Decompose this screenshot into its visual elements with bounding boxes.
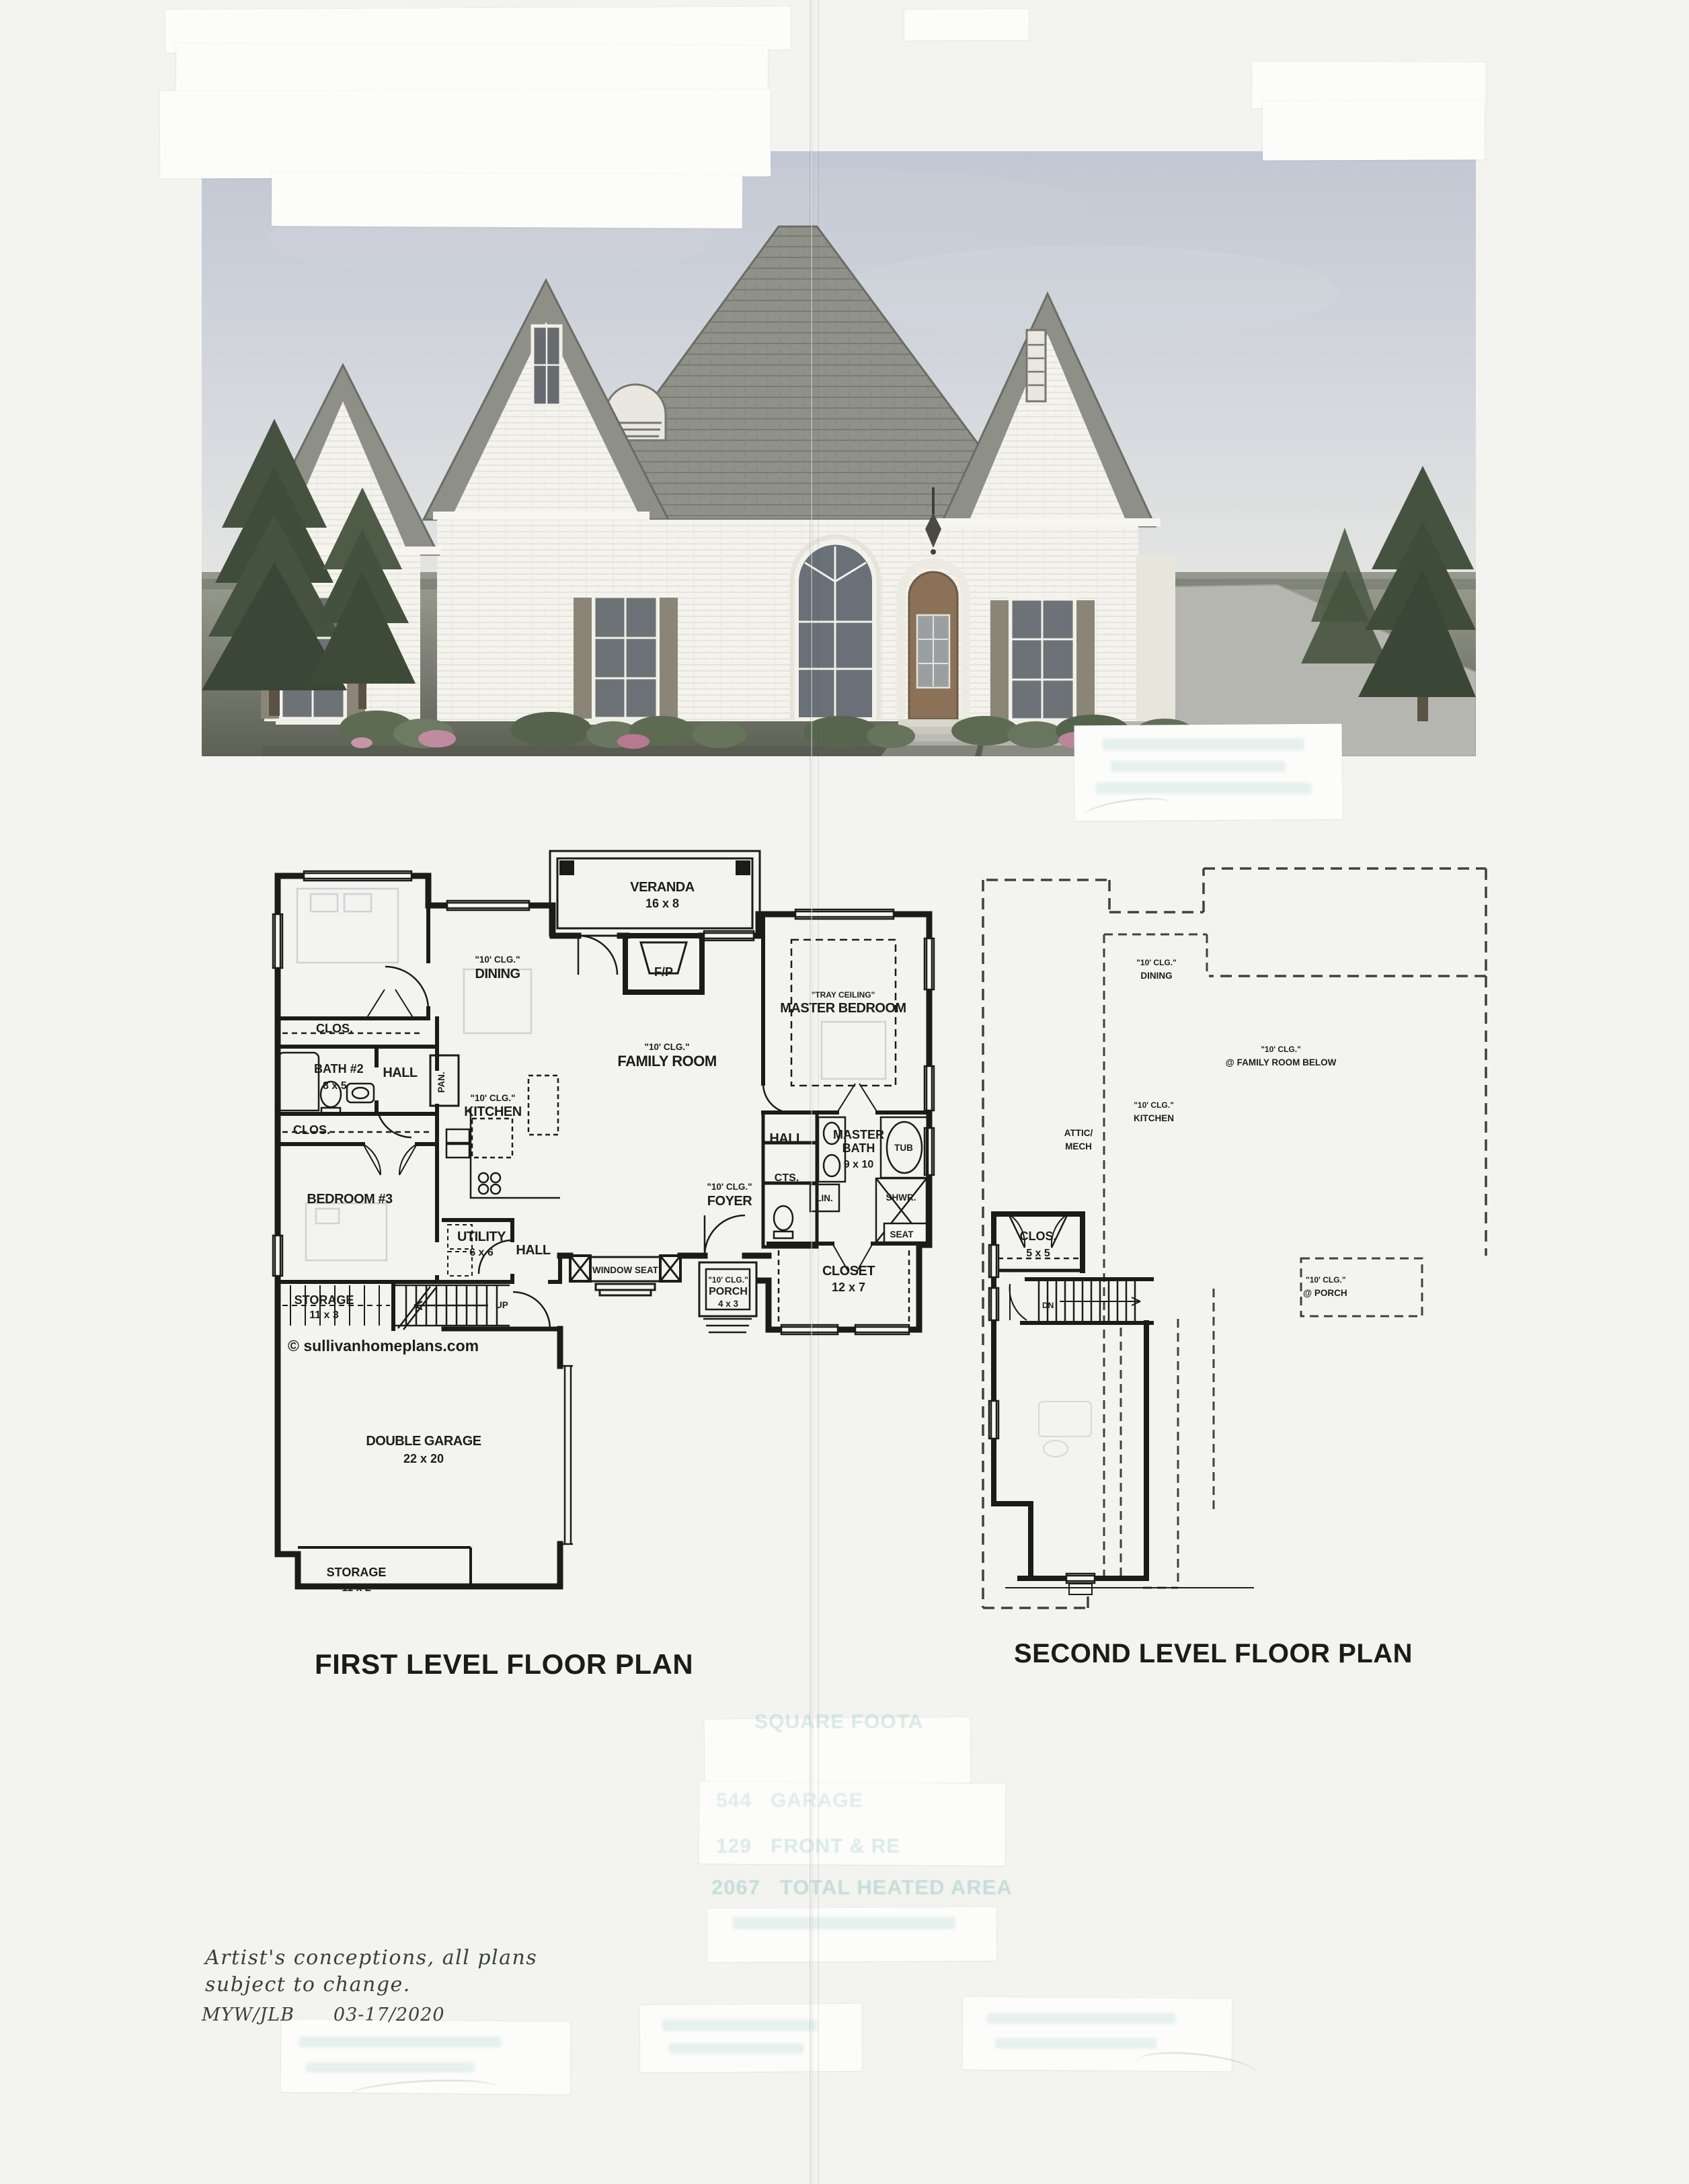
ghost-line bbox=[733, 1917, 955, 1929]
label-bedroom3: BEDROOM #3 bbox=[307, 1192, 393, 1207]
label-kitchen-clg: "10' CLG." bbox=[470, 1093, 515, 1103]
label-mbath-dim: 9 x 10 bbox=[844, 1159, 874, 1170]
redaction-patch bbox=[1263, 100, 1485, 160]
label-cts: CTS. bbox=[775, 1172, 799, 1184]
stairs-down bbox=[1010, 1281, 1140, 1321]
ghost-line bbox=[987, 2013, 1175, 2024]
artist-note-line1: Artist's conceptions, all plans bbox=[205, 1946, 537, 1970]
redaction-patch bbox=[707, 1907, 996, 1962]
label-2f-dining-clg: "10' CLG." bbox=[1136, 958, 1177, 967]
label-clos-dim: 5 x 5 bbox=[1026, 1248, 1050, 1259]
first-floor-plan-drawing: VERANDA 16 x 8 F/P "10' CLG." DINING "10… bbox=[262, 813, 948, 1613]
ghost-line bbox=[662, 2020, 817, 2031]
ghost-sqft-row3: 2067 TOTAL HEATED AREA bbox=[711, 1875, 1013, 1900]
label-2f-dining: DINING bbox=[1140, 971, 1172, 981]
artist-note-line2: subject to change. bbox=[205, 1973, 411, 1996]
ghost-line bbox=[1096, 782, 1311, 794]
second-floor-labels: CLOS. 5 x 5 DN "10' CLG." DINING "10' CL… bbox=[1019, 958, 1347, 1310]
exterior-walls bbox=[278, 876, 929, 1586]
label-veranda-dim: 16 x 8 bbox=[645, 897, 679, 910]
first-floor-labels: VERANDA 16 x 8 F/P "10' CLG." DINING "10… bbox=[288, 880, 916, 1594]
ghost-line bbox=[299, 2037, 501, 2048]
date: 03-17/2020 bbox=[333, 2005, 445, 2025]
ghost-row2-label: FRONT & RE bbox=[771, 1835, 900, 1857]
arched-window bbox=[792, 537, 879, 720]
credits-line: MYW/JLB03-17/2020 bbox=[202, 2005, 445, 2025]
house-rendering bbox=[202, 151, 1476, 756]
label-storage2-dim: 11 x 2 bbox=[342, 1582, 371, 1594]
watermark: © sullivanhomeplans.com bbox=[288, 1337, 479, 1354]
label-seat: SEAT bbox=[890, 1229, 914, 1240]
label-hall-mid: HALL bbox=[516, 1243, 551, 1258]
scanned-plan-sheet: VERANDA 16 x 8 F/P "10' CLG." DINING "10… bbox=[0, 0, 1689, 2184]
redaction-patch bbox=[640, 2004, 863, 2072]
label-dining-clg: "10' CLG." bbox=[475, 955, 520, 965]
ghost-line bbox=[1103, 738, 1304, 750]
label-family-below: @ FAMILY ROOM BELOW bbox=[1226, 1057, 1337, 1067]
label-utility-dim: 6 x 6 bbox=[469, 1247, 494, 1258]
redaction-patch bbox=[176, 43, 768, 96]
label-storage2: STORAGE bbox=[327, 1566, 387, 1579]
ghost-line bbox=[306, 2062, 474, 2072]
label-kitchen: KITCHEN bbox=[464, 1104, 521, 1119]
label-master-tray: "TRAY CEILING" bbox=[812, 990, 875, 1000]
second-floor-title: SECOND LEVEL FLOOR PLAN bbox=[1014, 1639, 1413, 1669]
second-floor-plan-drawing: CLOS. 5 x 5 DN "10' CLG." DINING "10' CL… bbox=[961, 844, 1506, 1617]
credits: MYW/JLB bbox=[202, 2005, 294, 2025]
label-family-clg: "10' CLG." bbox=[644, 1042, 689, 1052]
window-right bbox=[990, 599, 1095, 726]
label-clos: CLOS. bbox=[1019, 1229, 1056, 1243]
label-closet: CLOSET bbox=[822, 1264, 875, 1279]
redaction-patch bbox=[272, 172, 742, 229]
label-dn: DN bbox=[1042, 1301, 1054, 1310]
label-veranda: VERANDA bbox=[630, 880, 694, 895]
label-hall-top: HALL bbox=[383, 1065, 418, 1080]
label-up: UP bbox=[496, 1300, 508, 1310]
ghost-sqft-row1: 544 GARAGE bbox=[716, 1789, 863, 1812]
attic-louver bbox=[1027, 330, 1046, 401]
label-storage1-dim: 11 x 3 bbox=[309, 1309, 339, 1321]
ghost-line bbox=[995, 2038, 1156, 2048]
label-pan: PAN. bbox=[436, 1071, 446, 1092]
label-porch-below: @ PORCH bbox=[1303, 1288, 1347, 1298]
label-2f-kitchen: KITCHEN bbox=[1134, 1113, 1174, 1123]
label-foyer: FOYER bbox=[707, 1194, 752, 1209]
label-garage-dim: 22 x 20 bbox=[403, 1452, 444, 1465]
scan-fold-line-2 bbox=[818, 0, 819, 2184]
ghost-row3-num: 2067 bbox=[711, 1875, 760, 1899]
label-mbath2: BATH bbox=[842, 1141, 875, 1155]
powder-fixtures bbox=[774, 1206, 793, 1238]
label-storage1: STORAGE bbox=[294, 1293, 354, 1307]
label-bath2-dim: 8 x 5 bbox=[323, 1080, 347, 1092]
dashed-outline bbox=[983, 868, 1486, 1608]
label-fp: F/P bbox=[654, 965, 673, 979]
ghost-line bbox=[1111, 761, 1286, 772]
garage-door bbox=[560, 1366, 573, 1544]
ghost-fixture bbox=[1039, 1402, 1091, 1457]
label-window-seat: WINDOW SEAT bbox=[592, 1265, 659, 1275]
ghost-sqft-header: SQUARE FOOTA bbox=[754, 1711, 923, 1734]
ghost-row2-num: 129 bbox=[716, 1835, 752, 1857]
label-mbath1: MASTER bbox=[833, 1128, 884, 1141]
dashed-inner bbox=[1104, 934, 1422, 1588]
label-garage: DOUBLE GARAGE bbox=[366, 1434, 481, 1449]
label-shwr: SHWR. bbox=[886, 1192, 916, 1203]
front-door bbox=[890, 563, 976, 741]
label-master: MASTER BEDROOM bbox=[780, 1001, 906, 1016]
redaction-patch bbox=[904, 9, 1029, 40]
label-porch: PORCH bbox=[709, 1286, 748, 1297]
label-closet-dim: 12 x 7 bbox=[832, 1281, 865, 1294]
ghost-line bbox=[669, 2044, 803, 2054]
label-hall-master: HALL bbox=[769, 1131, 804, 1146]
label-family: FAMILY ROOM bbox=[617, 1053, 716, 1069]
redaction-patch bbox=[160, 89, 771, 178]
fireplace bbox=[625, 936, 702, 992]
label-bath2: BATH #2 bbox=[314, 1062, 364, 1076]
label-tub: TUB bbox=[894, 1143, 913, 1153]
label-porch-below-clg: "10' CLG." bbox=[1306, 1275, 1346, 1285]
first-floor-title: FIRST LEVEL FLOOR PLAN bbox=[315, 1648, 693, 1681]
window-left-center bbox=[574, 596, 678, 725]
kitchen-fixtures bbox=[430, 1055, 560, 1198]
label-attic2: MECH bbox=[1065, 1141, 1092, 1151]
window-seat bbox=[570, 1256, 680, 1295]
label-clos1: CLOS. bbox=[316, 1022, 353, 1035]
label-2f-kitchen-clg: "10' CLG." bbox=[1134, 1100, 1174, 1110]
label-clos2: CLOS. bbox=[293, 1123, 330, 1137]
ghost-row1-num: 544 bbox=[716, 1789, 752, 1812]
label-dining: DINING bbox=[475, 967, 520, 981]
bonus-room-walls bbox=[994, 1214, 1152, 1578]
label-foyer-clg: "10' CLG." bbox=[707, 1182, 752, 1192]
stairs-up bbox=[395, 1285, 510, 1330]
label-family-below-clg: "10' CLG." bbox=[1261, 1045, 1301, 1054]
label-porch-dim: 4 x 3 bbox=[718, 1299, 739, 1309]
scan-fold-line bbox=[809, 0, 814, 2184]
pen-smudge bbox=[1135, 2048, 1258, 2089]
attic-window bbox=[533, 326, 561, 405]
label-utility: UTILITY bbox=[457, 1229, 506, 1244]
label-attic1: ATTIC/ bbox=[1064, 1128, 1093, 1138]
ghost-row1-label: GARAGE bbox=[771, 1789, 863, 1812]
label-porch-clg: "10' CLG." bbox=[708, 1275, 748, 1285]
ghost-row3-label: TOTAL HEATED AREA bbox=[780, 1875, 1013, 1899]
